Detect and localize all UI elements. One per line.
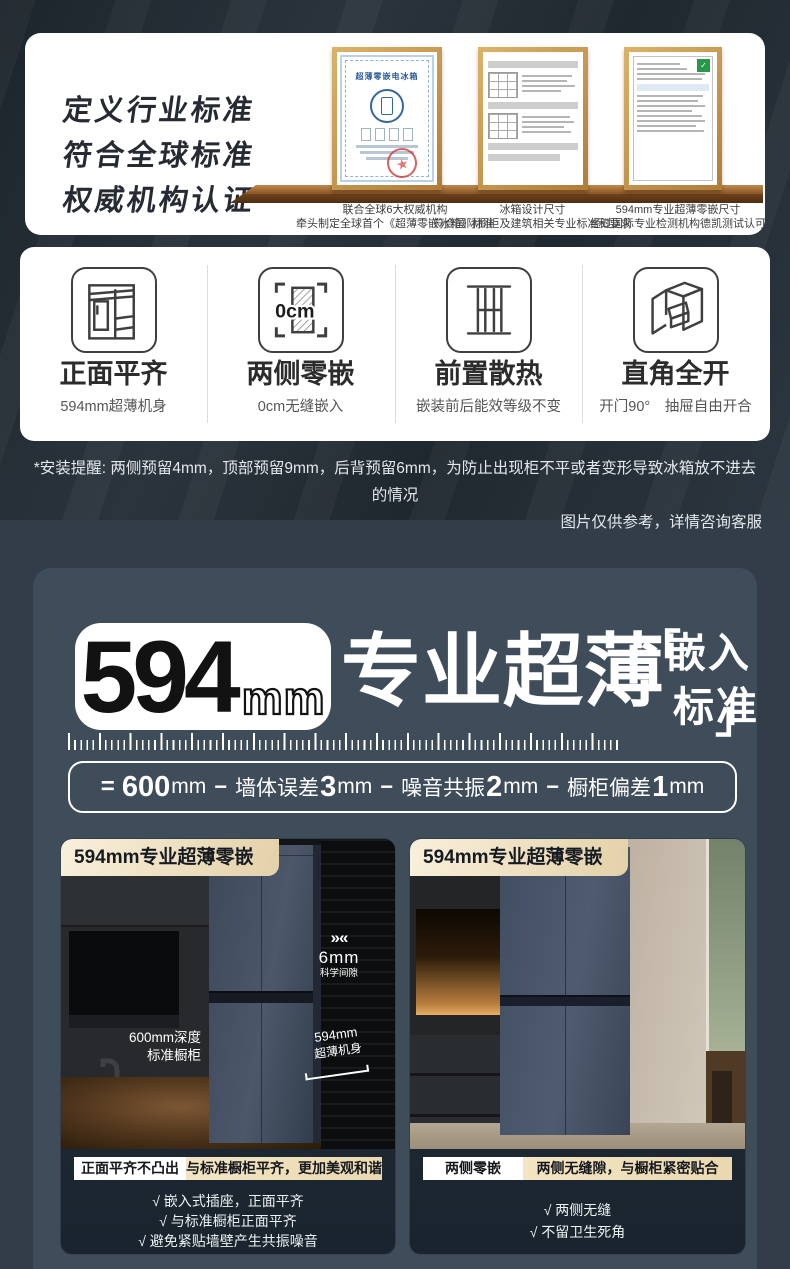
certificate-title: 超薄零嵌电冰箱 xyxy=(348,71,426,82)
check-item: √ 避免紧贴墙壁产生共振噪音 xyxy=(61,1231,395,1251)
formula-box: = 600 mm − 墙体误差 3 mm − 噪音共振 2 mm − 橱柜偏差 … xyxy=(68,761,737,813)
feature-title: 前置散热 xyxy=(395,359,582,389)
annotation-cabinet-depth: 600mm深度 标准橱柜 xyxy=(81,1029,201,1065)
feature-subtitle: 0cm无缝嵌入 xyxy=(207,395,394,416)
feature-title: 直角全开 xyxy=(582,359,769,389)
feature-zero-gap: 0cm 两侧零嵌 0cm无缝嵌入 xyxy=(207,247,394,441)
certificate-caption: 594mm专业超薄零嵌尺寸 经过国际专业检测机构德凯测试认可 xyxy=(577,203,779,231)
card-checklist: √ 两侧无缝 √ 不留卫生死角 xyxy=(410,1199,745,1243)
card-title-ribbon: 594mm专业超薄零嵌 xyxy=(410,839,628,876)
check-item: √ 两侧无缝 xyxy=(410,1199,745,1221)
feature-subtitle: 594mm超薄机身 xyxy=(20,395,207,416)
fridge-handle xyxy=(500,995,630,1006)
svg-text:0cm: 0cm xyxy=(275,300,314,322)
check-item: √ 嵌入式插座，正面平齐 xyxy=(61,1191,395,1211)
front-heat-dissipation-icon xyxy=(452,273,526,347)
card-checklist: √ 嵌入式插座，正面平齐 √ 与标准橱柜正面平齐 √ 避免紧贴墙壁产生共振噪音 xyxy=(61,1191,395,1251)
product-card-zero-gap: Haier 594mm专业超薄零嵌 两侧零嵌 两侧无缝隙，与橱柜紧密贴合 √ 两… xyxy=(409,838,746,1255)
badge-gold: 与标准橱柜平齐，更加美观和谐 xyxy=(186,1157,382,1180)
product-card-flush-front: Haier 600mm深度 标准橱柜 »« 6mm 科学间隙 594mm 超薄机… xyxy=(60,838,396,1255)
card-badges: 两侧零嵌 两侧无缝隙，与橱柜紧密贴合 xyxy=(423,1157,732,1180)
feature-right-angle-open: 直角全开 开门90° 抽屉自由开合 xyxy=(582,247,769,441)
ruler-graphic xyxy=(68,733,622,750)
features-panel: 正面平齐 594mm超薄机身 0cm 两侧零嵌 0cm无缝嵌入 xyxy=(20,247,770,441)
certification-panel: 定义行业标准 符合全球标准 权威机构认证 超薄零嵌电冰箱 ★ xyxy=(25,33,765,235)
hero-bracket-label: 「 嵌入 标准 」 xyxy=(637,617,761,737)
feature-subtitle: 嵌装前后能效等级不变 xyxy=(395,395,582,416)
hero-title: 专业超薄 xyxy=(341,614,641,730)
badge-gold: 两侧无缝隙，与橱柜紧密贴合 xyxy=(523,1157,732,1180)
check-item: √ 与标准橱柜正面平齐 xyxy=(61,1211,395,1231)
wall-right xyxy=(321,839,395,1149)
zero-gap-icon: 0cm xyxy=(264,273,338,347)
feature-subtitle: 开门90° 抽屉自由开合 xyxy=(582,395,769,416)
right-angle-open-icon xyxy=(639,273,713,347)
page: 定义行业标准 符合全球标准 权威机构认证 超薄零嵌电冰箱 ★ xyxy=(0,0,790,1269)
refrigerator: Haier xyxy=(209,845,313,1143)
hero-unit: mm xyxy=(242,675,326,721)
headline-line: 符合全球标准 xyxy=(60,134,258,179)
check-item: √ 不留卫生死角 xyxy=(410,1221,745,1243)
flush-front-cabinet-icon xyxy=(77,273,151,347)
wood-shelf-front xyxy=(230,194,763,203)
kitchen-photo-flush: Haier 600mm深度 标准橱柜 »« 6mm 科学间隙 594mm 超薄机… xyxy=(61,839,395,1149)
feature-title: 两侧零嵌 xyxy=(207,359,394,389)
gap-chevrons-icon: »« xyxy=(305,929,373,947)
hero-number: 594 xyxy=(81,633,236,721)
badge-white: 正面平齐不凸出 xyxy=(74,1157,186,1180)
badge-white: 两侧零嵌 xyxy=(423,1157,523,1180)
certification-headline: 定义行业标准 符合全球标准 权威机构认证 xyxy=(63,89,255,224)
install-note: *安装提醒: 两侧预留4mm，顶部预留9mm，后背预留6mm，为防止出现柜不平或… xyxy=(28,455,762,536)
bracket-word1: 嵌入 xyxy=(665,619,751,679)
card-badges: 正面平齐不凸出 与标准橱柜平齐，更加美观和谐 xyxy=(74,1157,382,1180)
headline-line: 定义行业标准 xyxy=(60,89,258,134)
window-greenery xyxy=(706,839,745,1067)
side-gap xyxy=(313,845,321,1143)
certificate-design-size xyxy=(478,47,588,190)
certificate-emblem-icon xyxy=(370,89,404,123)
dimension-diagram-icon xyxy=(488,113,518,139)
refrigerator: Haier xyxy=(500,847,630,1135)
install-note-line1: *安装提醒: 两侧预留4mm，顶部预留9mm，后背预留6mm，为防止出现柜不平或… xyxy=(28,455,762,509)
dimension-diagram-icon xyxy=(488,72,518,98)
bracket-close: 」 xyxy=(715,681,759,745)
card-title-ribbon: 594mm专业超薄零嵌 xyxy=(61,839,279,876)
certificate-stamps xyxy=(348,128,426,141)
green-cert-logo-icon: ✓ xyxy=(697,59,710,72)
divider xyxy=(582,265,583,423)
divider xyxy=(207,265,208,423)
feature-front-vent: 前置散热 嵌装前后能效等级不变 xyxy=(395,247,582,441)
chair xyxy=(712,1071,732,1131)
cabinet-warm-light xyxy=(416,909,500,1015)
kitchen-photo-zero-gap: Haier xyxy=(410,839,745,1149)
install-note-line2: 图片仅供参考，详情咨询客服 xyxy=(28,509,762,536)
annotation-gap: »« 6mm 科学间隙 xyxy=(305,929,373,980)
feature-title: 正面平齐 xyxy=(20,359,207,389)
feature-flush-front: 正面平齐 594mm超薄机身 xyxy=(20,247,207,441)
certificate-standard: 超薄零嵌电冰箱 ★ xyxy=(332,47,442,190)
fridge-handle xyxy=(209,991,313,1003)
hero-594-box: 594 mm xyxy=(75,623,331,730)
certificate-dekra-test: ✓ xyxy=(624,47,722,190)
certificate-blue-frame: 超薄零嵌电冰箱 ★ xyxy=(340,55,434,182)
divider xyxy=(395,265,396,423)
headline-line: 权威机构认证 xyxy=(60,179,258,224)
